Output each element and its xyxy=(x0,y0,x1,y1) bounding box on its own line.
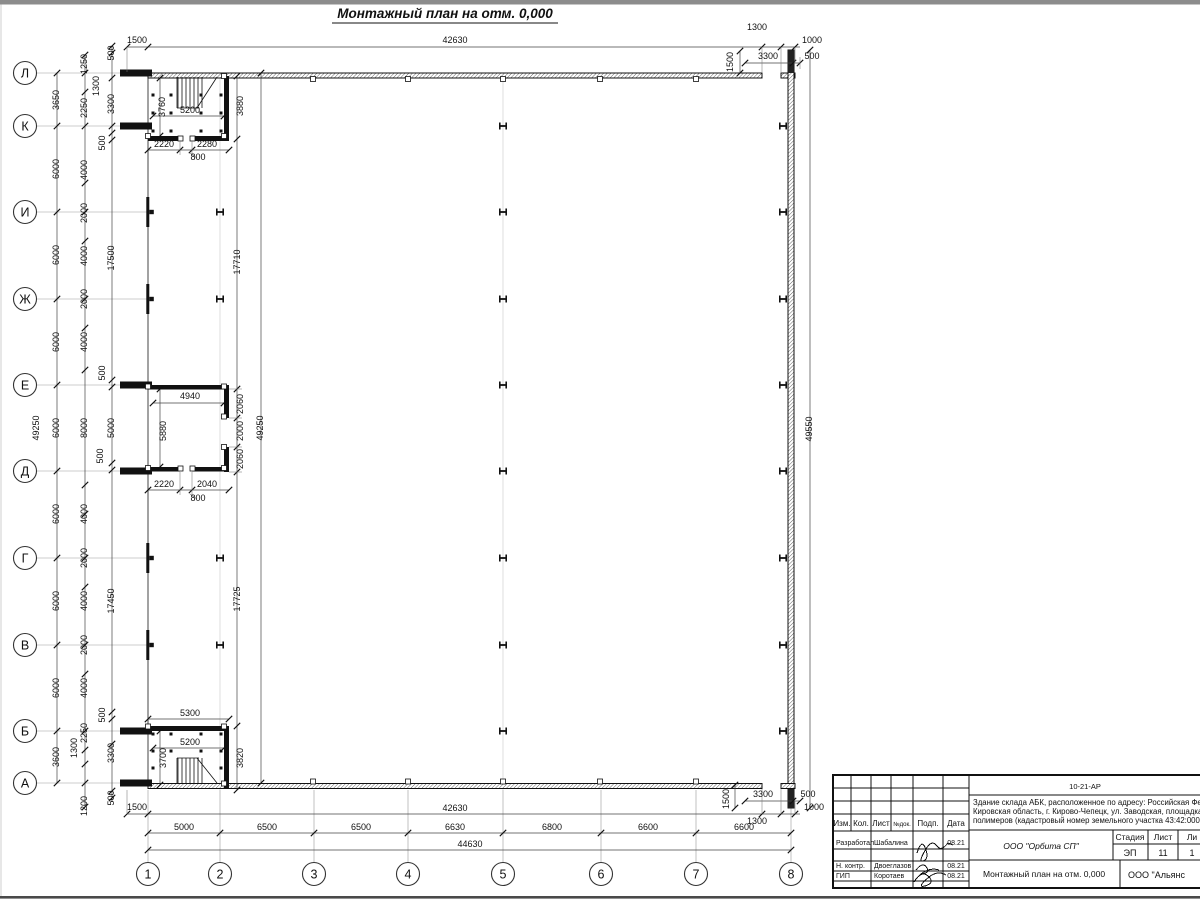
dimension-label: 6000 xyxy=(51,332,61,352)
bottom-wall xyxy=(148,784,762,789)
dimension-label: 1250 xyxy=(79,54,89,74)
right-wall-top-cap xyxy=(788,50,794,73)
dimension-label: 6000 xyxy=(51,418,61,438)
sheet-number: 11 xyxy=(1158,848,1167,858)
dimension-label: 2220 xyxy=(154,139,174,149)
sheet-frame xyxy=(0,0,1200,899)
axis-label-5: 5 xyxy=(500,867,507,881)
axis-label-Б: Б xyxy=(21,724,29,738)
montage-plan-svg: Монтажный план на отм. 0,000 1500 xyxy=(0,0,1200,900)
h-column xyxy=(779,728,787,735)
tb-header-col: Кол. xyxy=(853,819,869,828)
h-column xyxy=(779,642,787,649)
dimension-label: 800 xyxy=(190,493,205,503)
dimension-label: 3300 xyxy=(106,743,116,763)
dimension-label: 17500 xyxy=(106,245,116,270)
wall-post xyxy=(311,77,316,82)
dimension-label: 2000 xyxy=(79,203,89,223)
dimension-label: 42630 xyxy=(442,803,467,813)
wall-post xyxy=(222,466,227,471)
dimension-label: 500 xyxy=(804,51,819,61)
wall-post xyxy=(694,77,699,82)
room-dot xyxy=(220,112,223,115)
dimension-label: 42630 xyxy=(442,35,467,45)
tb-name: Двоеглазов xyxy=(874,863,911,870)
tb-date: 08.21 xyxy=(947,873,965,880)
dimension-label: 500 xyxy=(97,365,107,380)
dimension-label: 3300 xyxy=(106,94,116,114)
dimension-label: 1000 xyxy=(804,802,824,812)
wall-post xyxy=(311,779,316,784)
wall-return-bar xyxy=(120,70,152,77)
room-dot xyxy=(170,112,173,115)
description-line: Кировская область, г. Кирово-Чепецк, ул.… xyxy=(973,807,1200,816)
dimension-label: 2000 xyxy=(235,421,245,441)
drawing-title: Монтажный план на отм. 0,000 xyxy=(983,869,1105,879)
dimension-label: 1300 xyxy=(747,22,767,32)
dimension-label: 500 xyxy=(97,707,107,722)
building-walls xyxy=(148,50,795,808)
dimension-label: 1500 xyxy=(127,802,147,812)
dimension-label: 3600 xyxy=(51,747,61,767)
tb-role: Н. контр. xyxy=(836,863,865,870)
dimension-label: 500 xyxy=(106,790,116,805)
dimension-label: 17450 xyxy=(106,588,116,613)
dimension-label: 6000 xyxy=(51,159,61,179)
stage-label: Стадия xyxy=(1116,832,1145,842)
dimension-label: 1300 xyxy=(69,738,79,758)
dimension-label: 4940 xyxy=(180,391,200,401)
dimension-label: 1500 xyxy=(721,789,731,809)
dimension-label: 2060 xyxy=(235,394,245,414)
dimension-label: 49250 xyxy=(31,415,41,440)
axis-label-А: А xyxy=(21,776,30,790)
room-dot xyxy=(200,94,203,97)
sheet-title-group: Монтажный план на отм. 0,000 xyxy=(332,6,558,23)
dimension-label: 2060 xyxy=(235,449,245,469)
wall-post xyxy=(598,77,603,82)
wall-post xyxy=(406,779,411,784)
h-column xyxy=(779,209,787,216)
dimension-label: 1500 xyxy=(127,35,147,45)
room-dot xyxy=(170,130,173,133)
wall-return-bar xyxy=(120,780,152,787)
wall-post xyxy=(222,781,227,786)
wall-post xyxy=(598,779,603,784)
sheets-label: Ли xyxy=(1187,832,1198,842)
axis-label-2: 2 xyxy=(217,867,224,881)
plate-column xyxy=(146,284,154,314)
wall-post xyxy=(501,779,506,784)
room-dot xyxy=(152,733,155,736)
axis-label-Л: Л xyxy=(21,66,29,80)
wall-post xyxy=(222,724,227,729)
room-dot xyxy=(170,94,173,97)
dimension-label: 2040 xyxy=(197,479,217,489)
tb-name: Коротаев xyxy=(874,873,905,880)
bottom-wall-corner xyxy=(781,784,795,789)
stairs xyxy=(177,77,217,783)
dimension-label: 6600 xyxy=(734,822,754,832)
drawing-sheet: Монтажный план на отм. 0,000 1500 xyxy=(0,0,1200,900)
dimension-label: 4000 xyxy=(79,591,89,611)
room-dot xyxy=(152,112,155,115)
wall-post xyxy=(190,136,195,141)
dimension-label: 3650 xyxy=(51,90,61,110)
room1-right-wall xyxy=(224,76,229,139)
dimension-label: 6500 xyxy=(257,822,277,832)
description-line: полимеров (кадастровый номер земельного … xyxy=(973,816,1200,825)
dimension-label: 3300 xyxy=(758,51,778,61)
dimension-label: 6600 xyxy=(638,822,658,832)
h-column xyxy=(779,296,787,303)
dimension-label: 500 xyxy=(97,135,107,150)
axis-label-7: 7 xyxy=(693,867,700,881)
sheet-label: Лист xyxy=(1154,832,1173,842)
dimension-label: 1000 xyxy=(802,35,822,45)
dimension-label: 1500 xyxy=(725,52,735,72)
title-block: 10-21-АР Здание склада АБК, расположенно… xyxy=(833,775,1200,888)
room-dot xyxy=(200,130,203,133)
room-dot xyxy=(200,733,203,736)
tb-header-col: №док. xyxy=(893,821,911,828)
dimension-label: 2250 xyxy=(79,723,89,743)
wall-post xyxy=(501,77,506,82)
wall-post xyxy=(146,466,151,471)
wall-post xyxy=(406,77,411,82)
wall-post xyxy=(694,779,699,784)
dimension-label: 1200 xyxy=(79,796,89,816)
plate-column xyxy=(146,630,154,660)
wall-post xyxy=(222,384,227,389)
room-dot xyxy=(152,750,155,753)
wall-post xyxy=(222,445,227,450)
room-dot xyxy=(152,767,155,770)
wall-post xyxy=(190,466,195,471)
dimension-label: 2000 xyxy=(79,548,89,568)
wall-post xyxy=(146,134,151,139)
dimension-label: 4000 xyxy=(79,160,89,180)
room-dot xyxy=(170,750,173,753)
axis-label-К: К xyxy=(21,119,29,133)
tb-header-col: Изм. xyxy=(833,819,850,828)
room-dot xyxy=(220,130,223,133)
dimension-label: 5000 xyxy=(106,418,116,438)
dimension-label: 500 xyxy=(800,789,815,799)
wall-post xyxy=(222,74,227,79)
dimension-label: 1300 xyxy=(91,76,101,96)
axis-label-8: 8 xyxy=(788,867,795,881)
dimension-label: 500 xyxy=(106,45,116,60)
dimension-label: 17710 xyxy=(232,249,242,274)
dimension-label: 6500 xyxy=(351,822,371,832)
company-name: ООО "Орбита СП" xyxy=(1003,841,1079,851)
dimension-label: 6000 xyxy=(51,591,61,611)
axis-label-И: И xyxy=(21,205,30,219)
wall-return-bar xyxy=(120,123,152,130)
description-line: Здание склада АБК, расположенное по адре… xyxy=(973,798,1200,807)
dimension-label: 3760 xyxy=(157,97,167,117)
room-dot xyxy=(220,767,223,770)
axis-label-6: 6 xyxy=(598,867,605,881)
dimension-label: 44630 xyxy=(457,839,482,849)
right-wall-bottom-cap xyxy=(788,789,794,808)
tb-date: 08.21 xyxy=(947,863,965,870)
room3-right-wall xyxy=(224,731,229,788)
tb-name: Шабалина xyxy=(874,839,908,847)
dimension-lines xyxy=(54,43,813,853)
room-dot xyxy=(170,733,173,736)
h-column xyxy=(779,555,787,562)
tb-role: ГИП xyxy=(836,873,850,880)
dimension-label: 6000 xyxy=(51,678,61,698)
dimension-label: 4000 xyxy=(79,332,89,352)
h-column xyxy=(779,382,787,389)
dimension-label: 500 xyxy=(95,448,105,463)
dimension-label: 3820 xyxy=(235,748,245,768)
dimension-label: 800 xyxy=(190,152,205,162)
dimension-label: 8000 xyxy=(79,418,89,438)
axis-label-3: 3 xyxy=(311,867,318,881)
dimension-label: 17725 xyxy=(232,586,242,611)
dimension-label: 5200 xyxy=(180,105,200,115)
dimension-label: 6000 xyxy=(51,504,61,524)
room-dot xyxy=(220,733,223,736)
wall-post xyxy=(146,384,151,389)
tb-header-col: Лист xyxy=(872,819,890,828)
dimension-label: 49550 xyxy=(804,416,814,441)
h-column xyxy=(779,468,787,475)
dimension-label: 6800 xyxy=(542,822,562,832)
room2-bottom-wall-left xyxy=(148,467,180,472)
room-dot xyxy=(200,750,203,753)
room-dot xyxy=(152,130,155,133)
tb-header-col: Дата xyxy=(947,819,965,828)
dimension-label: 4000 xyxy=(79,504,89,524)
project-description: Здание склада АБК, расположенное по адре… xyxy=(973,798,1200,825)
top-wall xyxy=(148,73,762,78)
room-dot xyxy=(152,94,155,97)
axis-label-4: 4 xyxy=(405,867,412,881)
dimension-label: 49250 xyxy=(255,415,265,440)
dimension-label: 2250 xyxy=(79,98,89,118)
wall-post xyxy=(178,466,183,471)
dimension-label: 2000 xyxy=(79,635,89,655)
dimension-label: 5300 xyxy=(180,708,200,718)
dimension-label: 2280 xyxy=(197,139,217,149)
wall-post xyxy=(222,134,227,139)
axis-label-1: 1 xyxy=(145,867,152,881)
wall-post xyxy=(222,414,227,419)
dimension-label: 4000 xyxy=(79,246,89,266)
plate-column xyxy=(146,543,154,573)
org-name: ООО "Альянс xyxy=(1128,870,1185,880)
dimension-label: 2000 xyxy=(79,289,89,309)
right-wall xyxy=(788,50,794,808)
dimension-label: 5880 xyxy=(158,421,168,441)
dimension-label: 6630 xyxy=(445,822,465,832)
axis-label-Ж: Ж xyxy=(19,292,31,306)
h-column xyxy=(779,123,787,130)
dimension-label: 4000 xyxy=(79,678,89,698)
wall-post xyxy=(178,136,183,141)
plate-column xyxy=(146,197,154,227)
axis-label-Г: Г xyxy=(22,551,29,565)
sheets-total: 1 xyxy=(1189,848,1194,858)
dimension-label: 3300 xyxy=(753,789,773,799)
dimension-label: 3700 xyxy=(158,748,168,768)
dimension-label: 3880 xyxy=(235,96,245,116)
wall-post xyxy=(146,724,151,729)
dimension-label: 5000 xyxy=(174,822,194,832)
stage-value: ЭП xyxy=(1124,848,1137,858)
tb-role: Разработал xyxy=(836,839,874,847)
page-title: Монтажный план на отм. 0,000 xyxy=(337,6,553,21)
dimension-label: 6000 xyxy=(51,245,61,265)
axis-label-Д: Д xyxy=(21,464,30,478)
axis-label-Е: Е xyxy=(21,378,29,392)
dimension-label: 2220 xyxy=(154,479,174,489)
tb-header-col: Подп. xyxy=(917,819,938,828)
doc-number: 10-21-АР xyxy=(1069,782,1101,791)
room-dot xyxy=(220,94,223,97)
dimension-label: 5200 xyxy=(180,737,200,747)
axis-label-В: В xyxy=(21,638,29,652)
